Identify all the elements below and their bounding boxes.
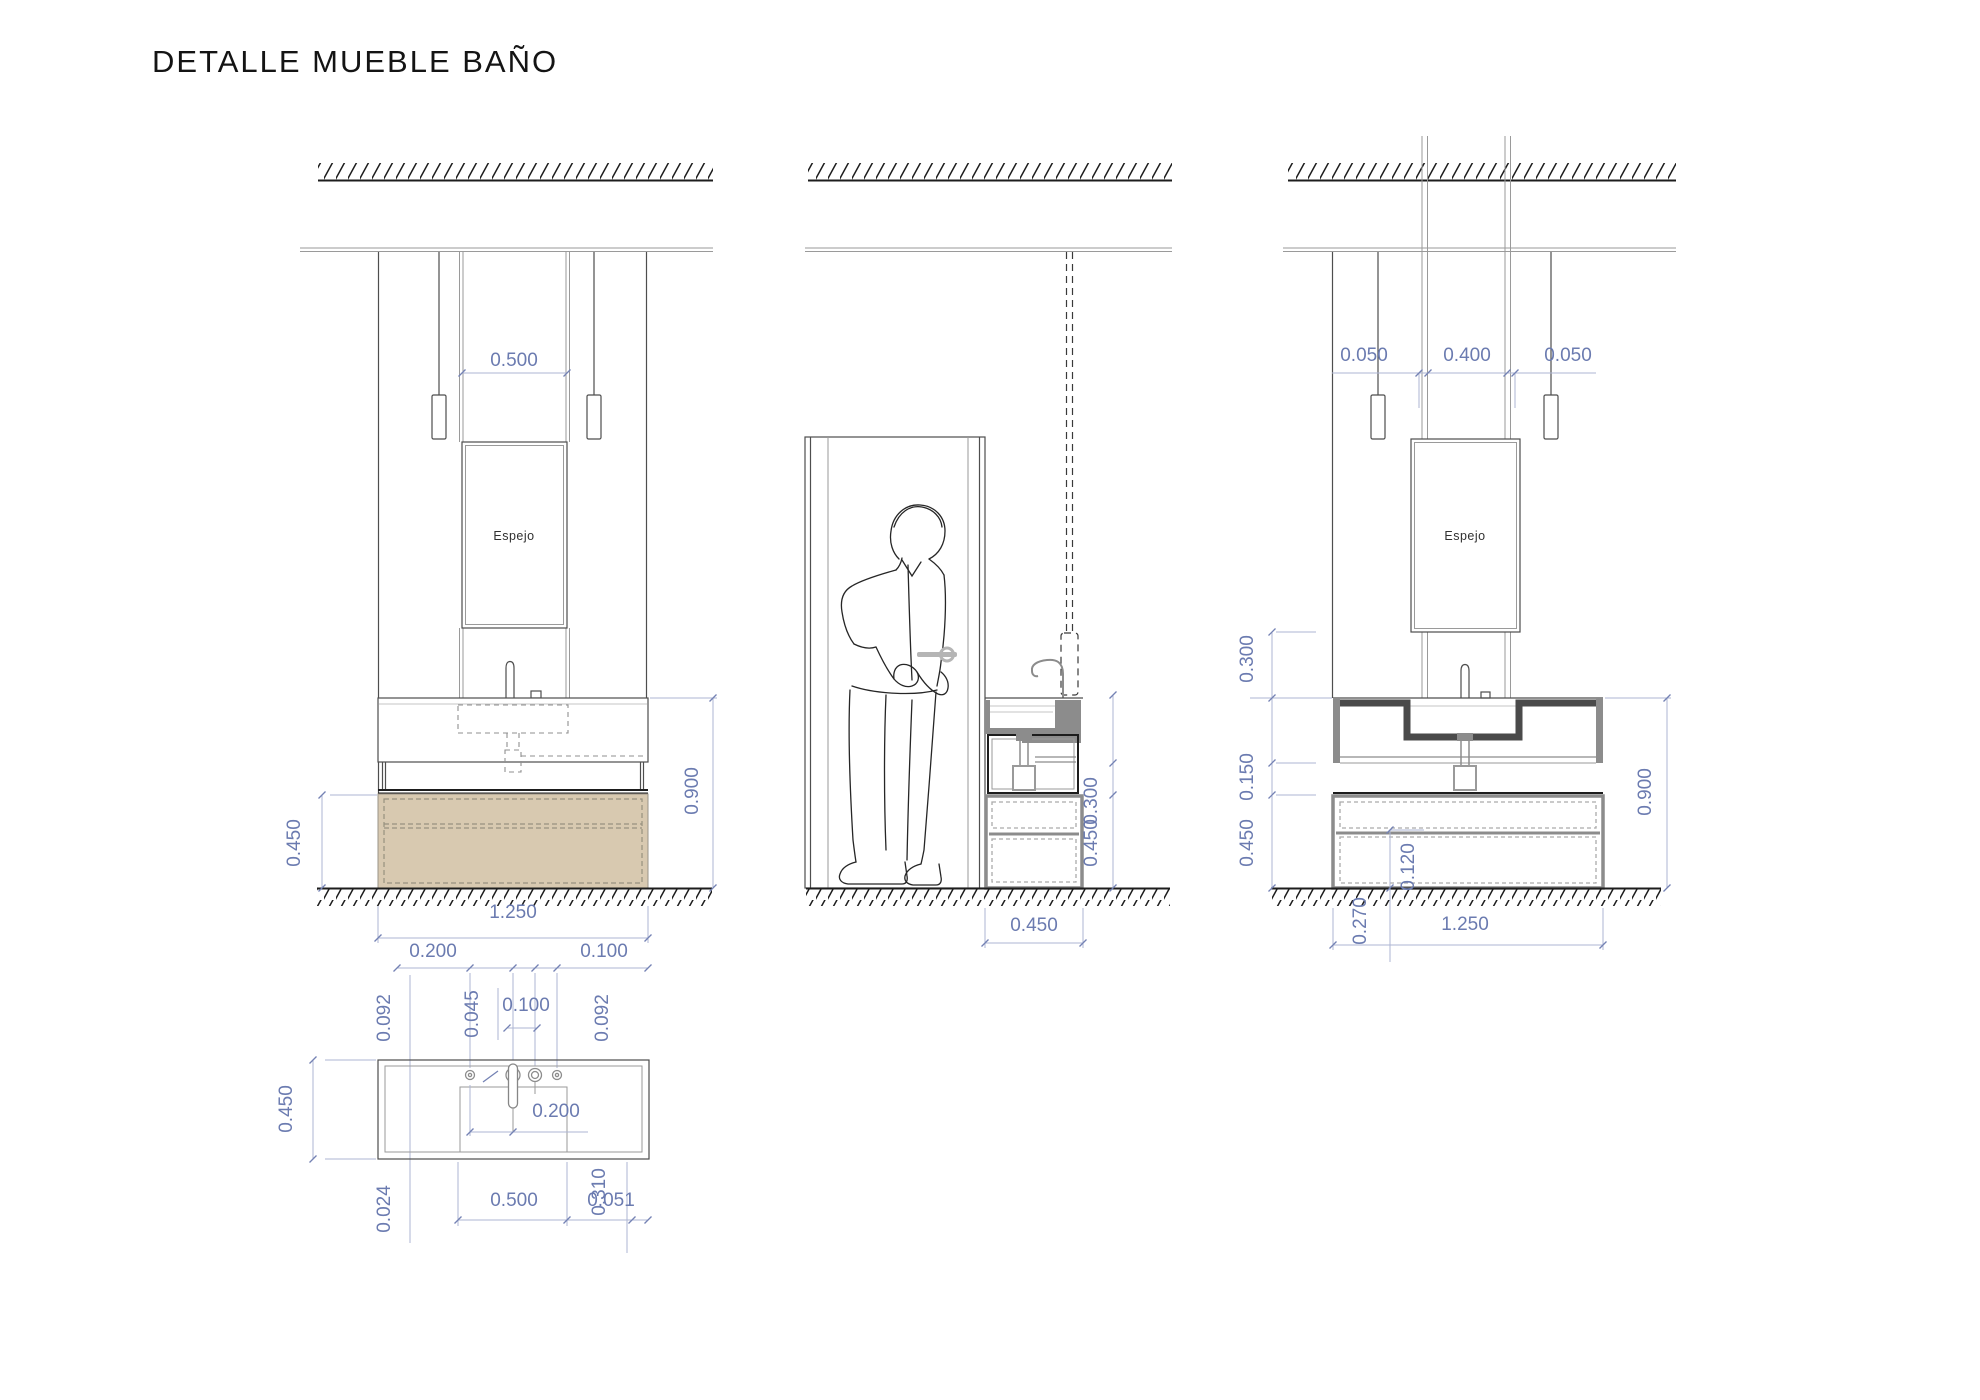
plan-dimensions: 0.092 0.045 0.100 0.092 0.450 0.200 0.02…: [276, 990, 652, 1233]
person-silhouette: [839, 505, 948, 886]
dim-basin-width: 0.500: [490, 1190, 538, 1211]
vanity-cabinet: [378, 794, 648, 888]
dim-holes-span: 0.100: [502, 995, 550, 1016]
pendant-light-hidden: [1061, 252, 1078, 695]
dim-depth: 0.450: [276, 1085, 297, 1133]
shelf-frame: [378, 762, 648, 794]
dim-faucet-offset: 0.200: [532, 1101, 580, 1122]
dim-total-width: 1.250: [1441, 914, 1489, 935]
mirror: Espejo: [462, 442, 567, 628]
dim-cabinet-height: 0.450: [284, 819, 305, 867]
sink-section: [985, 698, 1083, 793]
ceiling-hatch: [1288, 163, 1676, 180]
dim-counter-height: 0.900: [682, 767, 703, 815]
dim-hole-gap: 0.045: [462, 990, 483, 1038]
mirror-label: Espejo: [493, 529, 534, 543]
countertop-section: [1333, 698, 1603, 793]
faucet-spout-icon: [1032, 660, 1063, 698]
dim-drawer-base: 0.270: [1350, 897, 1371, 945]
drawing-canvas: Espejo: [0, 0, 1980, 1400]
floor-hatch: [806, 889, 1170, 906]
mirror-rods: [460, 252, 570, 698]
floor-hatch: [1271, 889, 1661, 906]
countertop: [378, 698, 648, 772]
faucet-icon: [1461, 665, 1490, 699]
front-elevation-section-view: Espejo: [1237, 136, 1676, 962]
dim-chain-right: 0.100: [580, 941, 628, 962]
dim-total-width: 1.250: [489, 902, 537, 923]
dim-drawer-height: 0.120: [1398, 843, 1419, 891]
right-view-dimensions: 0.050 0.400 0.050 0.300 0.150 0.450: [1237, 345, 1671, 962]
dim-mirror-rods: 0.400: [1443, 345, 1491, 366]
faucet-icon: [506, 662, 541, 699]
dim-cabinet-height: 0.450: [1081, 819, 1102, 867]
pendant-light: [587, 252, 601, 439]
dim-mirror-width: 0.500: [490, 350, 538, 371]
dim-rim: 0.024: [374, 1185, 395, 1233]
front-elevation-view: Espejo: [284, 163, 717, 972]
dim-counter-zone: 0.300: [1081, 777, 1102, 825]
side-section-view: 0.300 0.450 0.450: [805, 163, 1172, 948]
countertop-plan-view: 0.092 0.045 0.100 0.092 0.450 0.200 0.02…: [276, 973, 652, 1253]
dim-gap-right: 0.050: [1544, 345, 1592, 366]
faucet-plan-icon: [509, 1064, 518, 1108]
dim-depth: 0.450: [1010, 915, 1058, 936]
dim-basin-edge: 0.051: [587, 1190, 635, 1211]
pendant-light: [432, 252, 446, 439]
mirror-rods: [1422, 136, 1511, 698]
dim-mirror-to-counter: 0.300: [1237, 635, 1258, 683]
dim-cabinet-height: 0.450: [1237, 819, 1258, 867]
dim-hole-left: 0.092: [374, 994, 395, 1042]
vanity-cabinet-section: [986, 796, 1082, 888]
dim-counter-height: 0.900: [1635, 768, 1656, 816]
ceiling-hatch: [318, 163, 713, 180]
mirror-label: Espejo: [1444, 529, 1485, 543]
dim-hole-right: 0.092: [592, 994, 613, 1042]
dim-frame-height: 0.150: [1237, 753, 1258, 801]
dim-gap-left: 0.050: [1340, 345, 1388, 366]
mirror: Espejo: [1411, 439, 1520, 632]
dim-chain-left: 0.200: [409, 941, 457, 962]
drawing-sheet: DETALLE MUEBLE BAÑO: [0, 0, 1980, 1400]
vanity-cabinet-drawers: [1333, 796, 1603, 888]
ceiling-hatch: [808, 163, 1172, 180]
